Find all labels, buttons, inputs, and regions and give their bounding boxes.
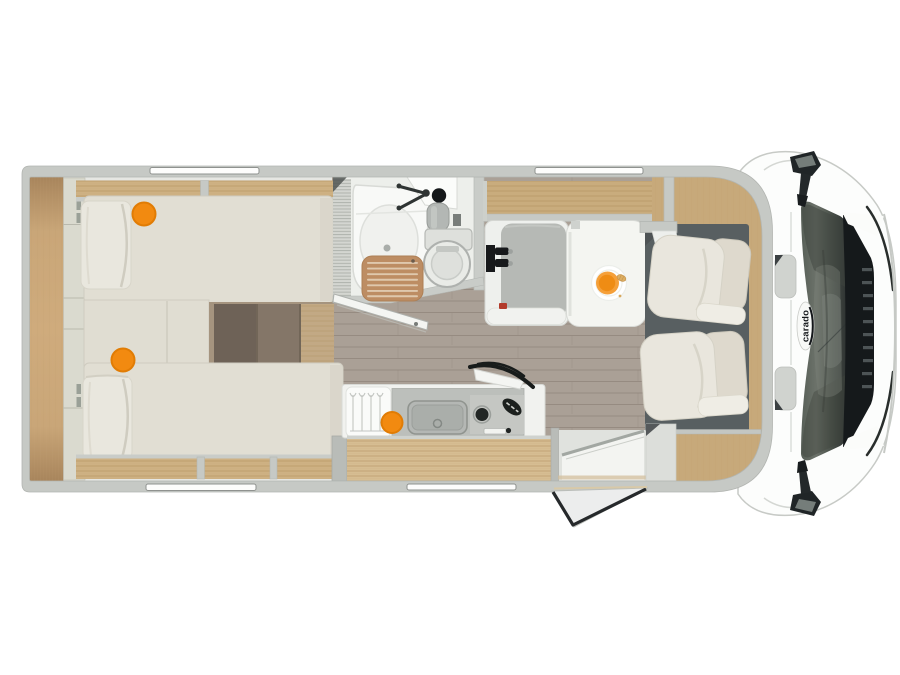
svg-text:carado: carado — [801, 310, 812, 342]
